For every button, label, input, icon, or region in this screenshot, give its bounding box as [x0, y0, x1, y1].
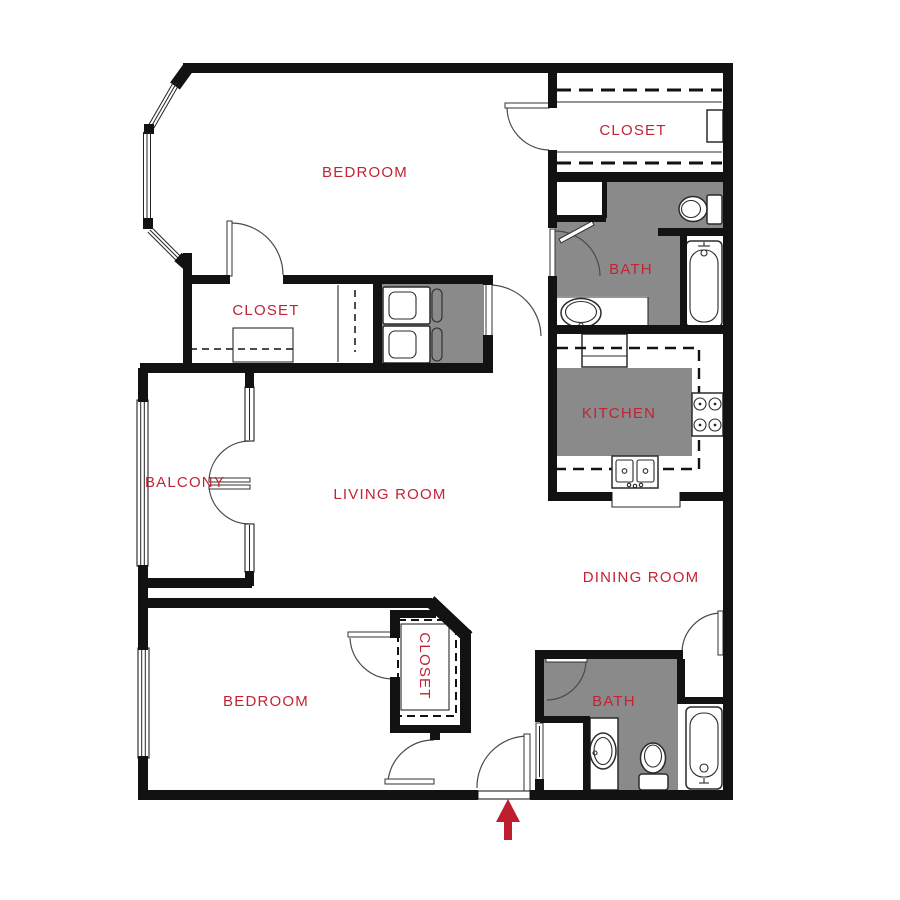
wall-segment — [183, 63, 733, 73]
wall-segment — [548, 492, 612, 501]
room-label-closet-top: CLOSET — [232, 302, 299, 319]
toilet-upper-icon — [679, 195, 722, 224]
door-leaf — [550, 229, 555, 277]
door-leaf — [227, 221, 232, 276]
sink-lower-icon — [590, 733, 616, 769]
room-label-living-room: LIVING ROOM — [333, 486, 446, 503]
wall-segment — [548, 215, 606, 222]
vestibule — [683, 659, 723, 697]
wall-segment — [373, 284, 382, 364]
wall-segment — [680, 492, 723, 501]
wall-segment — [535, 650, 683, 659]
wall-segment — [183, 275, 230, 284]
bedroom-window — [138, 648, 149, 758]
kitchen-sink-icon — [612, 456, 658, 488]
kitchen-opening — [612, 492, 680, 507]
wall-segment — [483, 335, 493, 373]
wall-segment — [140, 790, 478, 800]
wall-segment — [548, 63, 557, 108]
door-leaf — [505, 103, 549, 108]
bathtub-lower-icon — [686, 707, 722, 789]
wall-segment — [548, 276, 557, 326]
room-label-walkin-closet: CLOSET — [599, 122, 666, 139]
room-label-closet-lower: CLOSET — [416, 632, 433, 699]
wall-segment — [183, 253, 192, 365]
wall-segment — [548, 325, 557, 501]
stove-icon — [692, 393, 723, 436]
wall-segment — [677, 659, 685, 699]
wall-segment — [535, 779, 544, 800]
wall-segment — [583, 716, 590, 790]
refrigerator-icon — [582, 334, 627, 367]
wall-segment — [140, 363, 490, 373]
door-leaf — [385, 779, 434, 784]
entry-door-leaf — [524, 734, 530, 791]
toilet-lower-icon — [639, 743, 668, 790]
entry-closet — [544, 722, 584, 790]
room-label-kitchen: KITCHEN — [582, 405, 656, 422]
wall-segment — [658, 228, 723, 236]
wall-segment — [680, 236, 687, 330]
door-leaf — [718, 611, 723, 655]
wall-segment — [548, 325, 723, 334]
floor-plan: BEDROOM CLOSET CLOSET BATH KITCHEN BALCO… — [0, 0, 900, 900]
wall-segment — [602, 182, 607, 218]
wall-segment — [540, 716, 585, 723]
door-leaf — [486, 283, 492, 336]
wall-segment — [140, 578, 252, 588]
wall-segment — [140, 598, 432, 608]
linen-closet — [556, 182, 602, 216]
room-label-balcony: BALCONY — [145, 474, 225, 491]
closet-shelf-box — [707, 110, 723, 142]
wall-segment — [245, 373, 254, 388]
wall-segment — [677, 697, 723, 704]
wall-segment — [138, 368, 148, 402]
wall-segment — [535, 650, 544, 722]
wall-segment — [530, 790, 733, 800]
room-label-bedroom-top: BEDROOM — [322, 164, 408, 181]
entry-arrow-stem — [504, 821, 512, 840]
wall-segment — [548, 172, 733, 182]
wall-segment — [483, 275, 493, 285]
room-label-bath-top: BATH — [609, 261, 653, 278]
entry-threshold — [478, 791, 530, 799]
room-label-bedroom-lower: BEDROOM — [223, 693, 309, 710]
room-label-dining-room: DINING ROOM — [583, 569, 700, 586]
wall-segment — [283, 275, 484, 284]
wall-segment — [138, 756, 148, 800]
wall-segment — [460, 630, 471, 733]
wall-segment — [430, 725, 440, 740]
floor-plan-page: BEDROOM CLOSET CLOSET BATH KITCHEN BALCO… — [0, 0, 900, 900]
background — [0, 0, 900, 900]
wall-segment — [390, 610, 400, 638]
bathtub-upper-icon — [686, 241, 722, 327]
room-label-bath-lower: BATH — [592, 693, 636, 710]
wall-segment — [390, 677, 400, 725]
door-leaf — [348, 632, 393, 637]
